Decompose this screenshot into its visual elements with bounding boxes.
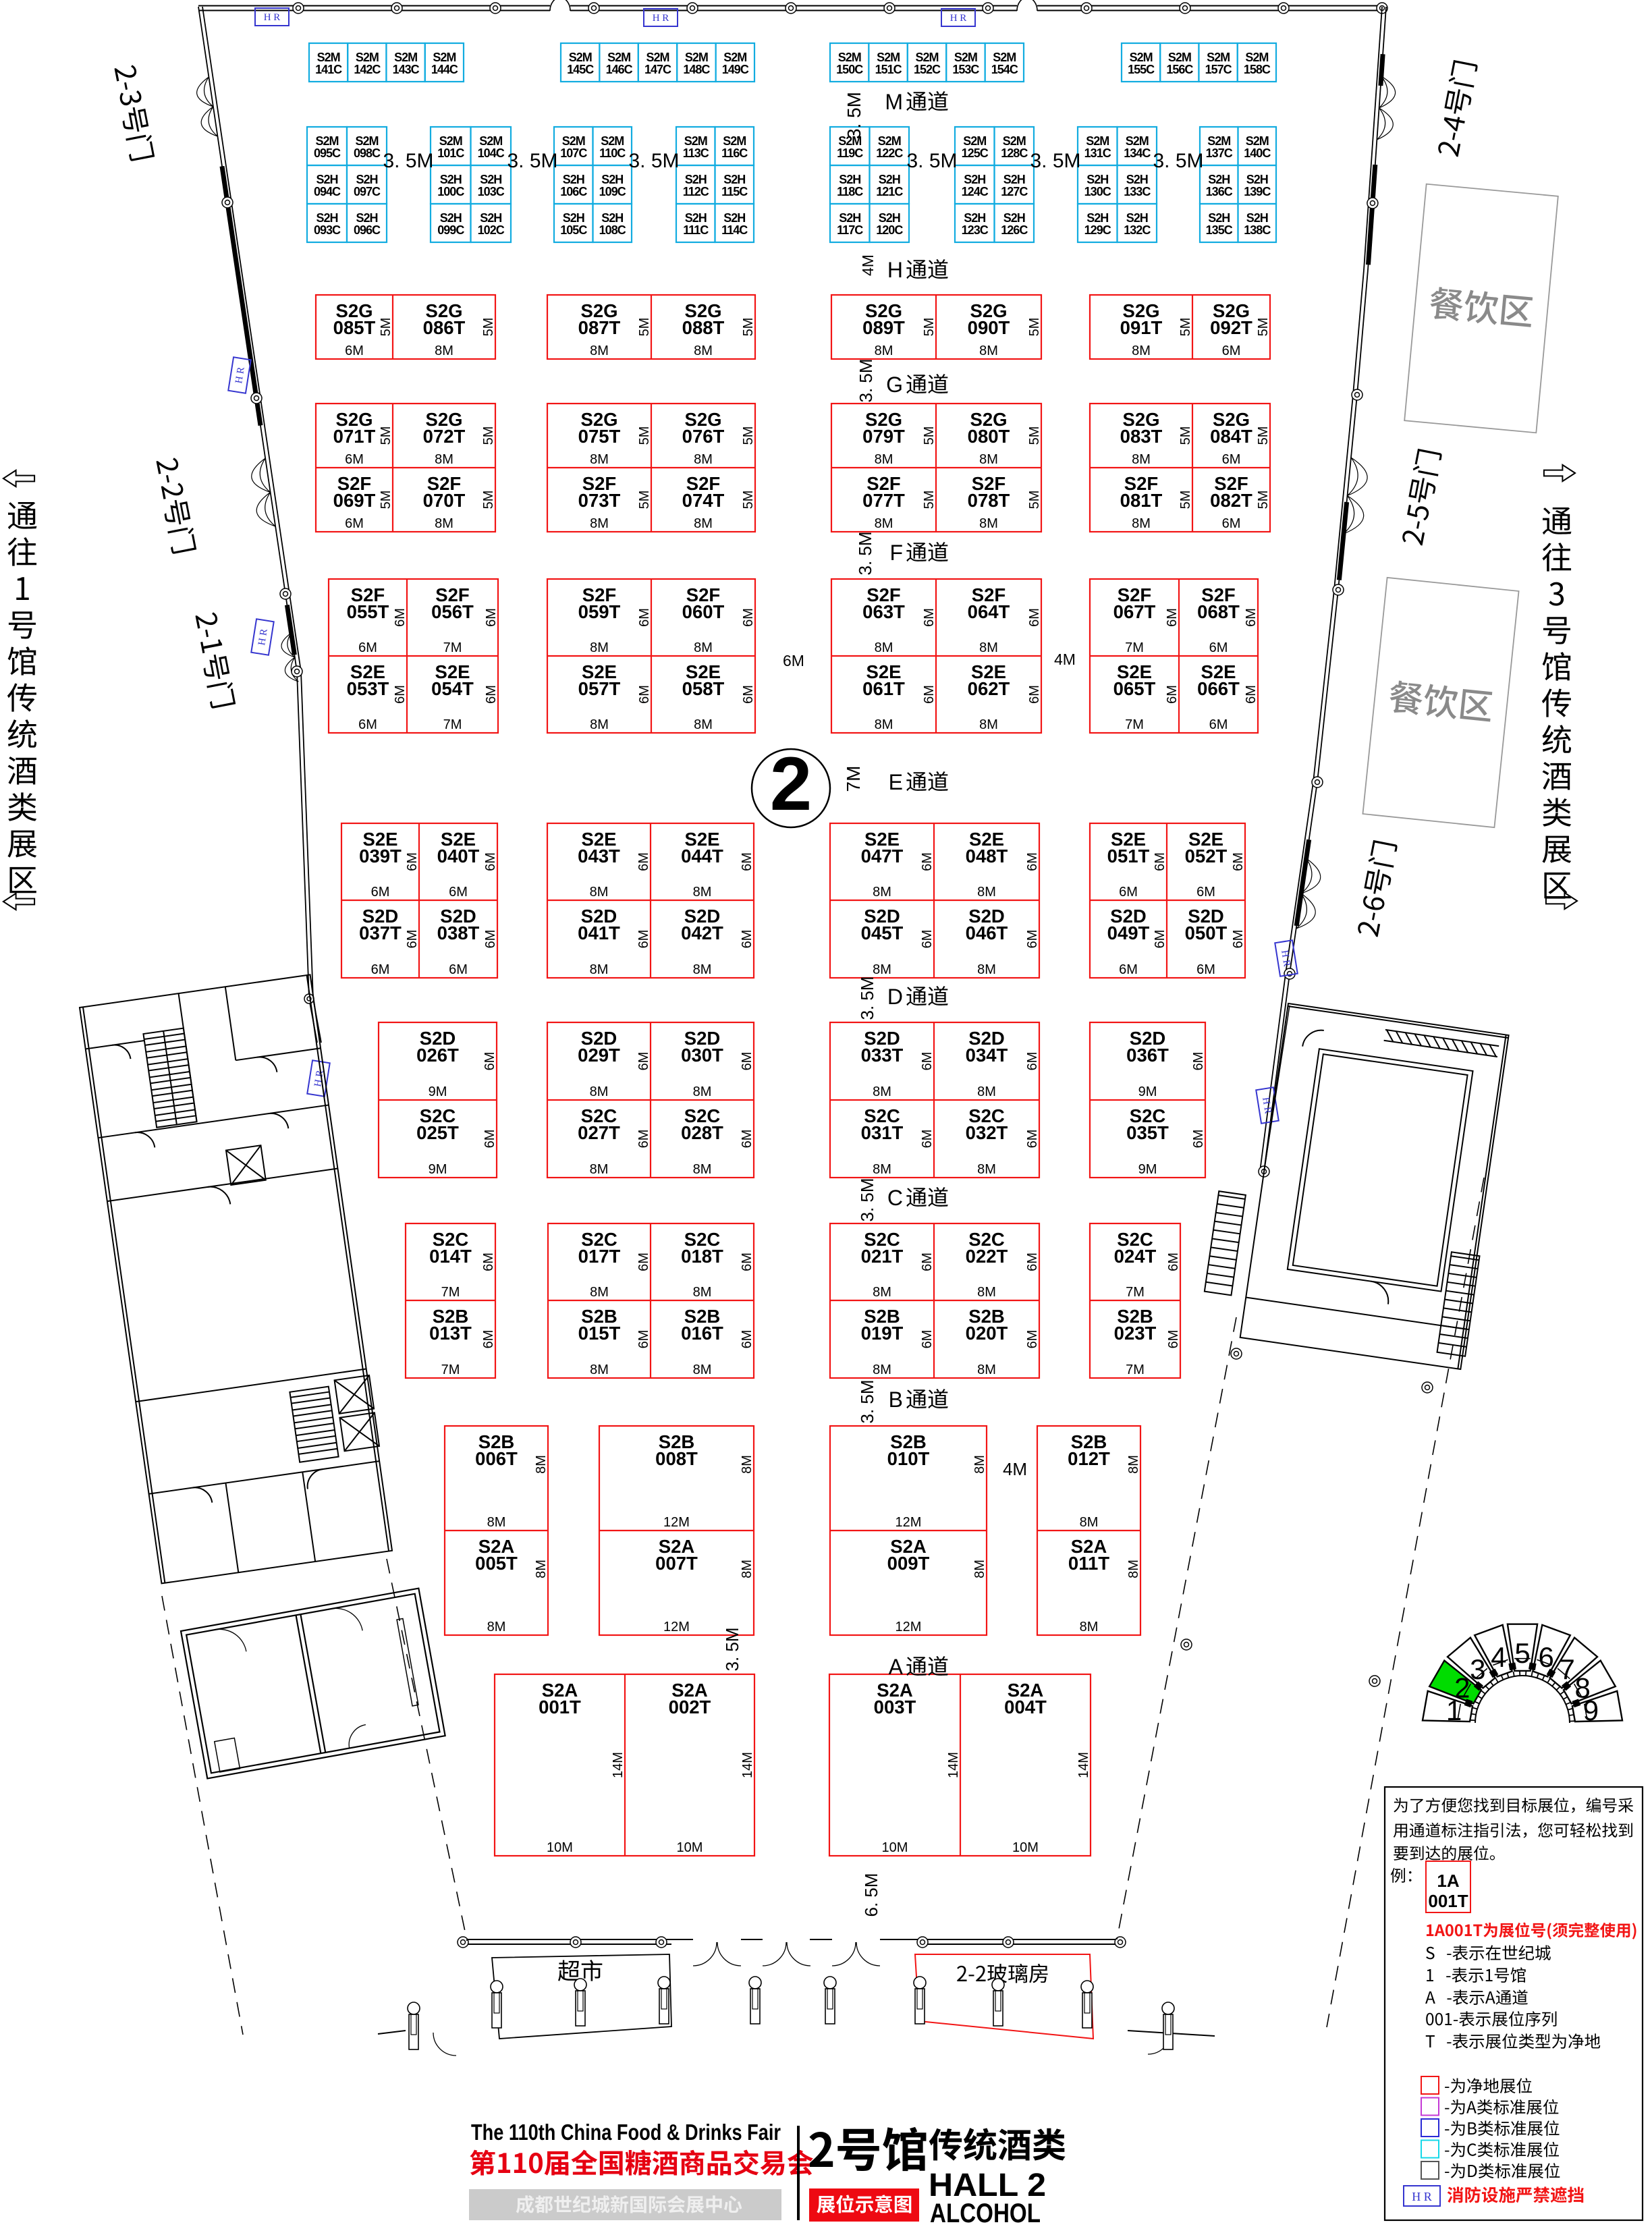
svg-text:8M: 8M	[487, 1620, 506, 1634]
svg-text:5M: 5M	[1178, 491, 1193, 509]
svg-text:14M: 14M	[740, 1752, 755, 1778]
svg-text:008T: 008T	[655, 1448, 698, 1469]
svg-text:6M: 6M	[1119, 962, 1138, 977]
svg-text:8M: 8M	[1080, 1620, 1099, 1634]
svg-text:S2H: S2H	[1126, 173, 1148, 186]
svg-text:S2M: S2M	[1126, 134, 1149, 148]
svg-text:011T: 011T	[1068, 1553, 1109, 1574]
svg-text:6M: 6M	[1166, 1330, 1181, 1349]
svg-text:6M: 6M	[484, 608, 499, 627]
svg-text:6M: 6M	[741, 685, 756, 704]
svg-text:6M: 6M	[1231, 852, 1246, 871]
svg-text:14M: 14M	[611, 1752, 626, 1778]
svg-text:015T: 015T	[578, 1323, 621, 1344]
svg-text:6M: 6M	[1209, 640, 1228, 655]
svg-text:8M: 8M	[590, 1362, 609, 1377]
svg-text:3. 5M: 3. 5M	[628, 150, 679, 172]
svg-text:043T: 043T	[578, 846, 620, 866]
svg-text:119C: 119C	[837, 146, 863, 160]
svg-text:8M: 8M	[590, 343, 609, 358]
svg-text:8M: 8M	[979, 516, 998, 531]
svg-text:8M: 8M	[694, 717, 713, 732]
svg-text:8M: 8M	[694, 516, 713, 531]
svg-text:8M: 8M	[979, 452, 998, 467]
svg-text:S2H: S2H	[1086, 211, 1108, 225]
svg-text:S2M: S2M	[439, 134, 462, 148]
svg-text:3. 5M: 3. 5M	[722, 1627, 742, 1671]
svg-text:6M: 6M	[636, 1330, 651, 1349]
svg-text:101C: 101C	[437, 146, 464, 160]
svg-text:135C: 135C	[1206, 223, 1233, 237]
svg-text:8M: 8M	[590, 1285, 609, 1300]
svg-text:6M: 6M	[1191, 1052, 1206, 1071]
svg-text:112C: 112C	[683, 185, 709, 198]
svg-text:091T: 091T	[1120, 317, 1163, 338]
svg-text:6M: 6M	[740, 852, 754, 871]
svg-text:009T: 009T	[887, 1553, 930, 1574]
svg-text:8M: 8M	[972, 1560, 987, 1578]
svg-text:136C: 136C	[1206, 185, 1233, 198]
svg-text:8M: 8M	[977, 1084, 996, 1099]
svg-text:S2M: S2M	[877, 51, 900, 64]
svg-text:C: C	[887, 1186, 903, 1210]
svg-text:5M: 5M	[481, 426, 496, 445]
svg-text:8M: 8M	[435, 452, 453, 467]
svg-text:090T: 090T	[968, 317, 1010, 338]
svg-text:6M: 6M	[1025, 1252, 1040, 1271]
svg-text:102C: 102C	[478, 223, 505, 237]
svg-text:6M: 6M	[481, 1252, 496, 1271]
svg-text:016T: 016T	[681, 1323, 723, 1344]
svg-text:10M: 10M	[677, 1840, 703, 1855]
svg-text:020T: 020T	[966, 1323, 1008, 1344]
svg-text:6M: 6M	[1191, 1130, 1206, 1149]
svg-text:1A: 1A	[1437, 1871, 1459, 1891]
svg-text:8M: 8M	[590, 717, 609, 732]
svg-text:098C: 098C	[354, 146, 381, 160]
svg-text:8M: 8M	[693, 1084, 712, 1099]
svg-text:120C: 120C	[876, 223, 903, 237]
svg-text:S2M: S2M	[1086, 134, 1109, 148]
svg-text:8M: 8M	[875, 343, 893, 358]
svg-text:S2M: S2M	[878, 134, 901, 148]
svg-text:9M: 9M	[1138, 1084, 1157, 1099]
svg-text:8M: 8M	[979, 343, 998, 358]
svg-text:014T: 014T	[429, 1246, 472, 1267]
svg-text:8M: 8M	[694, 343, 713, 358]
svg-text:097C: 097C	[354, 185, 381, 198]
svg-text:6M: 6M	[740, 930, 754, 949]
svg-text:6M: 6M	[1196, 962, 1215, 977]
svg-text:104C: 104C	[478, 146, 505, 160]
svg-text:12M: 12M	[663, 1515, 690, 1530]
svg-text:027T: 027T	[578, 1122, 620, 1143]
svg-text:S2M: S2M	[355, 134, 378, 148]
svg-text:6M: 6M	[371, 962, 390, 977]
svg-text:S2M: S2M	[1168, 51, 1191, 64]
svg-text:8M: 8M	[590, 640, 609, 655]
svg-text:6M: 6M	[1222, 516, 1241, 531]
svg-text:6M: 6M	[1025, 1052, 1040, 1071]
svg-text:137C: 137C	[1206, 146, 1233, 160]
svg-text:S2M: S2M	[317, 51, 340, 64]
svg-text:065T: 065T	[1113, 678, 1156, 699]
svg-text:5M: 5M	[1256, 426, 1271, 445]
svg-text:6M: 6M	[1222, 343, 1241, 358]
svg-text:146C: 146C	[606, 63, 633, 76]
svg-text:6M: 6M	[920, 1252, 935, 1271]
svg-text:4M: 4M	[859, 254, 877, 276]
svg-text:6: 6	[1539, 1641, 1554, 1673]
svg-text:4M: 4M	[1054, 651, 1076, 668]
svg-text:S2M: S2M	[646, 51, 669, 64]
svg-text:052T: 052T	[1185, 846, 1228, 866]
svg-text:113C: 113C	[683, 146, 709, 160]
svg-text:8M: 8M	[590, 962, 609, 977]
svg-text:147C: 147C	[644, 63, 671, 76]
svg-text:H R: H R	[950, 13, 967, 24]
svg-text:S2H: S2H	[601, 211, 623, 225]
svg-text:S2H: S2H	[1086, 173, 1108, 186]
svg-text:032T: 032T	[966, 1122, 1008, 1143]
svg-text:S2M: S2M	[569, 51, 592, 64]
svg-text:5M: 5M	[1027, 318, 1042, 337]
svg-text:075T: 075T	[578, 426, 621, 447]
svg-text:6M: 6M	[1222, 452, 1241, 467]
svg-text:8M: 8M	[740, 1560, 754, 1578]
svg-text:069T: 069T	[333, 490, 376, 511]
svg-text:030T: 030T	[681, 1045, 723, 1066]
svg-text:088T: 088T	[682, 317, 725, 338]
svg-text:H R: H R	[264, 12, 281, 23]
svg-text:115C: 115C	[721, 185, 748, 198]
svg-text:6M: 6M	[637, 685, 652, 704]
svg-text:12M: 12M	[663, 1620, 690, 1634]
svg-text:6M: 6M	[920, 852, 935, 871]
svg-text:8M: 8M	[693, 1162, 712, 1177]
svg-text:6M: 6M	[740, 1130, 754, 1149]
svg-text:S2M: S2M	[915, 51, 938, 64]
svg-text:6M: 6M	[449, 962, 468, 977]
svg-text:8M: 8M	[1132, 516, 1151, 531]
svg-text:10M: 10M	[1012, 1840, 1039, 1855]
svg-text:3: 3	[1470, 1653, 1485, 1685]
svg-text:8M: 8M	[590, 885, 609, 900]
svg-text:129C: 129C	[1084, 223, 1111, 237]
svg-text:8M: 8M	[977, 885, 996, 900]
svg-text:018T: 018T	[681, 1246, 723, 1267]
svg-text:8M: 8M	[590, 1084, 609, 1099]
svg-text:S2H: S2H	[1003, 211, 1025, 225]
svg-text:021T: 021T	[861, 1246, 904, 1267]
svg-text:S2H: S2H	[356, 173, 377, 186]
svg-text:6M: 6M	[920, 930, 935, 949]
svg-text:B: B	[889, 1387, 903, 1412]
svg-text:148C: 148C	[683, 63, 710, 76]
svg-text:7M: 7M	[1126, 1285, 1145, 1300]
svg-text:6M: 6M	[741, 608, 756, 627]
svg-text:047T: 047T	[861, 846, 904, 866]
svg-text:6M: 6M	[636, 1052, 651, 1071]
svg-text:9M: 9M	[1138, 1162, 1157, 1177]
svg-text:105C: 105C	[560, 223, 587, 237]
svg-text:086T: 086T	[423, 317, 466, 338]
svg-text:10M: 10M	[547, 1840, 573, 1855]
svg-text:078T: 078T	[968, 490, 1010, 511]
svg-text:6M: 6M	[1025, 1130, 1040, 1149]
svg-text:E: E	[889, 770, 903, 794]
svg-text:6M: 6M	[405, 930, 420, 949]
svg-text:5M: 5M	[741, 318, 756, 337]
svg-text:S2M: S2M	[1207, 51, 1230, 64]
svg-text:8M: 8M	[435, 516, 453, 531]
svg-text:100C: 100C	[437, 185, 464, 198]
svg-text:S2H: S2H	[1246, 173, 1268, 186]
svg-text:007T: 007T	[655, 1553, 698, 1574]
svg-text:5M: 5M	[741, 426, 756, 445]
svg-text:071T: 071T	[333, 426, 376, 447]
svg-text:067T: 067T	[1113, 601, 1156, 622]
svg-text:8M: 8M	[1126, 1560, 1141, 1578]
svg-text:5M: 5M	[637, 318, 652, 337]
svg-text:6M: 6M	[358, 640, 377, 655]
svg-text:045T: 045T	[861, 922, 904, 943]
svg-text:133C: 133C	[1124, 185, 1151, 198]
svg-text:S2M: S2M	[723, 134, 746, 148]
svg-text:055T: 055T	[347, 601, 389, 622]
svg-text:6. 5M: 6. 5M	[861, 1873, 881, 1917]
svg-text:142C: 142C	[354, 63, 381, 76]
svg-text:117C: 117C	[837, 223, 863, 237]
svg-text:8M: 8M	[1080, 1515, 1099, 1530]
svg-text:8M: 8M	[972, 1455, 987, 1474]
svg-text:8M: 8M	[435, 343, 453, 358]
svg-text:S2H: S2H	[316, 173, 337, 186]
svg-text:8M: 8M	[875, 640, 893, 655]
svg-text:A: A	[889, 1655, 904, 1679]
svg-text:079T: 079T	[862, 426, 905, 447]
svg-text:S2M: S2M	[479, 134, 502, 148]
svg-text:S2H: S2H	[440, 211, 462, 225]
svg-text:7M: 7M	[1125, 640, 1144, 655]
svg-text:8M: 8M	[693, 962, 712, 977]
svg-text:149C: 149C	[722, 63, 749, 76]
svg-text:6M: 6M	[1119, 885, 1138, 900]
svg-text:6M: 6M	[1153, 930, 1167, 949]
svg-text:S2M: S2M	[607, 51, 630, 64]
svg-text:5: 5	[1514, 1637, 1530, 1669]
svg-text:S2M: S2M	[963, 134, 986, 148]
svg-text:3. 5M: 3. 5M	[856, 358, 876, 402]
svg-text:070T: 070T	[423, 490, 466, 511]
svg-text:10M: 10M	[882, 1840, 908, 1855]
svg-text:5M: 5M	[1027, 426, 1042, 445]
svg-text:8M: 8M	[875, 516, 893, 531]
svg-text:6M: 6M	[920, 1130, 935, 1149]
svg-text:6M: 6M	[922, 608, 937, 627]
svg-text:154C: 154C	[991, 63, 1018, 76]
svg-text:14M: 14M	[946, 1752, 961, 1778]
svg-text:155C: 155C	[1128, 63, 1155, 76]
svg-text:S2H: S2H	[964, 211, 985, 225]
svg-text:044T: 044T	[681, 846, 723, 866]
svg-text:S2M: S2M	[723, 51, 746, 64]
svg-text:8M: 8M	[979, 640, 998, 655]
svg-text:026T: 026T	[416, 1045, 459, 1066]
svg-text:083T: 083T	[1120, 426, 1163, 447]
svg-text:6M: 6M	[483, 852, 498, 871]
svg-text:8M: 8M	[1132, 452, 1151, 467]
svg-text:6M: 6M	[783, 652, 804, 669]
svg-text:087T: 087T	[578, 317, 621, 338]
svg-text:S2M: S2M	[562, 134, 585, 148]
svg-text:082T: 082T	[1210, 490, 1252, 511]
svg-text:073T: 073T	[578, 490, 621, 511]
svg-text:8M: 8M	[590, 452, 609, 467]
svg-text:8M: 8M	[740, 1455, 754, 1474]
svg-text:076T: 076T	[682, 426, 725, 447]
svg-text:005T: 005T	[475, 1553, 518, 1574]
svg-text:ALCOHOL: ALCOHOL	[930, 2199, 1041, 2228]
svg-text:013T: 013T	[429, 1323, 472, 1344]
svg-text:2: 2	[770, 742, 812, 826]
svg-text:S2M: S2M	[954, 51, 977, 64]
svg-text:001T: 001T	[539, 1697, 581, 1717]
svg-text:5M: 5M	[1256, 318, 1271, 337]
svg-text:124C: 124C	[962, 185, 989, 198]
svg-text:S2M: S2M	[1207, 134, 1230, 148]
svg-text:S2H: S2H	[879, 173, 900, 186]
svg-text:8M: 8M	[534, 1560, 549, 1578]
svg-text:6M: 6M	[1209, 717, 1228, 732]
svg-text:8M: 8M	[979, 717, 998, 732]
svg-text:114C: 114C	[721, 223, 748, 237]
svg-text:138C: 138C	[1244, 223, 1271, 237]
svg-text:M: M	[885, 90, 903, 114]
svg-text:012T: 012T	[1068, 1448, 1110, 1469]
svg-text:S2M: S2M	[356, 51, 379, 64]
svg-text:6M: 6M	[1165, 608, 1180, 627]
svg-text:034T: 034T	[966, 1045, 1008, 1066]
svg-text:089T: 089T	[862, 317, 905, 338]
svg-text:7: 7	[1560, 1653, 1575, 1685]
svg-text:S2H: S2H	[964, 173, 985, 186]
svg-text:8M: 8M	[534, 1455, 549, 1474]
svg-text:8M: 8M	[977, 1162, 996, 1177]
svg-text:4M: 4M	[1003, 1459, 1027, 1479]
svg-text:106C: 106C	[560, 185, 587, 198]
svg-text:048T: 048T	[966, 846, 1008, 866]
svg-text:6M: 6M	[920, 1052, 935, 1071]
svg-text:139C: 139C	[1244, 185, 1271, 198]
svg-text:029T: 029T	[578, 1045, 620, 1066]
svg-text:S2H: S2H	[1208, 211, 1230, 225]
svg-text:157C: 157C	[1205, 63, 1232, 76]
svg-text:S2M: S2M	[315, 134, 338, 148]
svg-text:5M: 5M	[922, 491, 937, 509]
svg-text:6M: 6M	[1025, 930, 1040, 949]
svg-text:150C: 150C	[836, 63, 863, 76]
svg-text:5M: 5M	[637, 491, 652, 509]
svg-text:F: F	[889, 541, 903, 565]
svg-text:14M: 14M	[1076, 1752, 1091, 1778]
svg-text:8M: 8M	[487, 1515, 506, 1530]
svg-text:077T: 077T	[862, 490, 905, 511]
svg-text:S2H: S2H	[685, 211, 707, 225]
svg-text:5M: 5M	[1027, 491, 1042, 509]
svg-text:074T: 074T	[682, 490, 725, 511]
svg-text:037T: 037T	[359, 922, 402, 943]
svg-text:8M: 8M	[590, 1162, 609, 1177]
svg-text:095C: 095C	[314, 146, 341, 160]
svg-text:2: 2	[1454, 1672, 1470, 1704]
svg-text:6M: 6M	[636, 1252, 651, 1271]
svg-text:6M: 6M	[1025, 852, 1040, 871]
svg-text:068T: 068T	[1197, 601, 1240, 622]
svg-text:8M: 8M	[590, 516, 609, 531]
svg-text:5M: 5M	[1256, 491, 1271, 509]
svg-text:153C: 153C	[952, 63, 979, 76]
svg-text:116C: 116C	[721, 146, 748, 160]
svg-text:S2M: S2M	[1003, 134, 1026, 148]
svg-text:6M: 6M	[405, 852, 420, 871]
svg-text:127C: 127C	[1001, 185, 1028, 198]
svg-text:7M: 7M	[443, 717, 462, 732]
svg-text:S2M: S2M	[394, 51, 417, 64]
svg-text:062T: 062T	[968, 678, 1010, 699]
svg-text:144C: 144C	[431, 63, 458, 76]
svg-text:025T: 025T	[416, 1122, 459, 1143]
svg-text:036T: 036T	[1126, 1045, 1169, 1066]
svg-text:7M: 7M	[1126, 1362, 1145, 1377]
svg-text:033T: 033T	[861, 1045, 904, 1066]
svg-text:094C: 094C	[314, 185, 341, 198]
svg-text:001T: 001T	[1428, 1891, 1468, 1911]
svg-text:8M: 8M	[873, 1084, 891, 1099]
svg-text:5M: 5M	[1178, 426, 1193, 445]
svg-text:123C: 123C	[962, 223, 989, 237]
svg-text:031T: 031T	[861, 1122, 904, 1143]
svg-text:110C: 110C	[599, 146, 626, 160]
svg-text:S2H: S2H	[480, 211, 501, 225]
svg-text:H R: H R	[1412, 2190, 1432, 2203]
svg-text:057T: 057T	[578, 678, 621, 699]
svg-text:S2H: S2H	[839, 173, 860, 186]
svg-text:8M: 8M	[977, 1362, 996, 1377]
svg-text:S2M: S2M	[685, 51, 708, 64]
svg-text:7M: 7M	[441, 1285, 460, 1300]
svg-text:081T: 081T	[1120, 490, 1163, 511]
svg-text:039T: 039T	[359, 846, 402, 866]
svg-text:8M: 8M	[977, 1285, 996, 1300]
svg-text:6M: 6M	[1027, 608, 1042, 627]
svg-text:6M: 6M	[393, 608, 408, 627]
svg-text:131C: 131C	[1084, 146, 1111, 160]
svg-text:8M: 8M	[694, 640, 713, 655]
svg-text:066T: 066T	[1197, 678, 1240, 699]
svg-text:6M: 6M	[483, 1130, 497, 1149]
svg-text:6M: 6M	[358, 717, 377, 732]
svg-text:072T: 072T	[423, 426, 466, 447]
svg-text:S2H: S2H	[723, 173, 745, 186]
svg-text:6M: 6M	[636, 852, 651, 871]
svg-text:019T: 019T	[861, 1323, 904, 1344]
svg-text:S2H: S2H	[316, 211, 337, 225]
svg-text:6M: 6M	[740, 1330, 754, 1349]
svg-text:143C: 143C	[393, 63, 420, 76]
svg-text:6M: 6M	[1165, 685, 1180, 704]
svg-text:085T: 085T	[333, 317, 376, 338]
